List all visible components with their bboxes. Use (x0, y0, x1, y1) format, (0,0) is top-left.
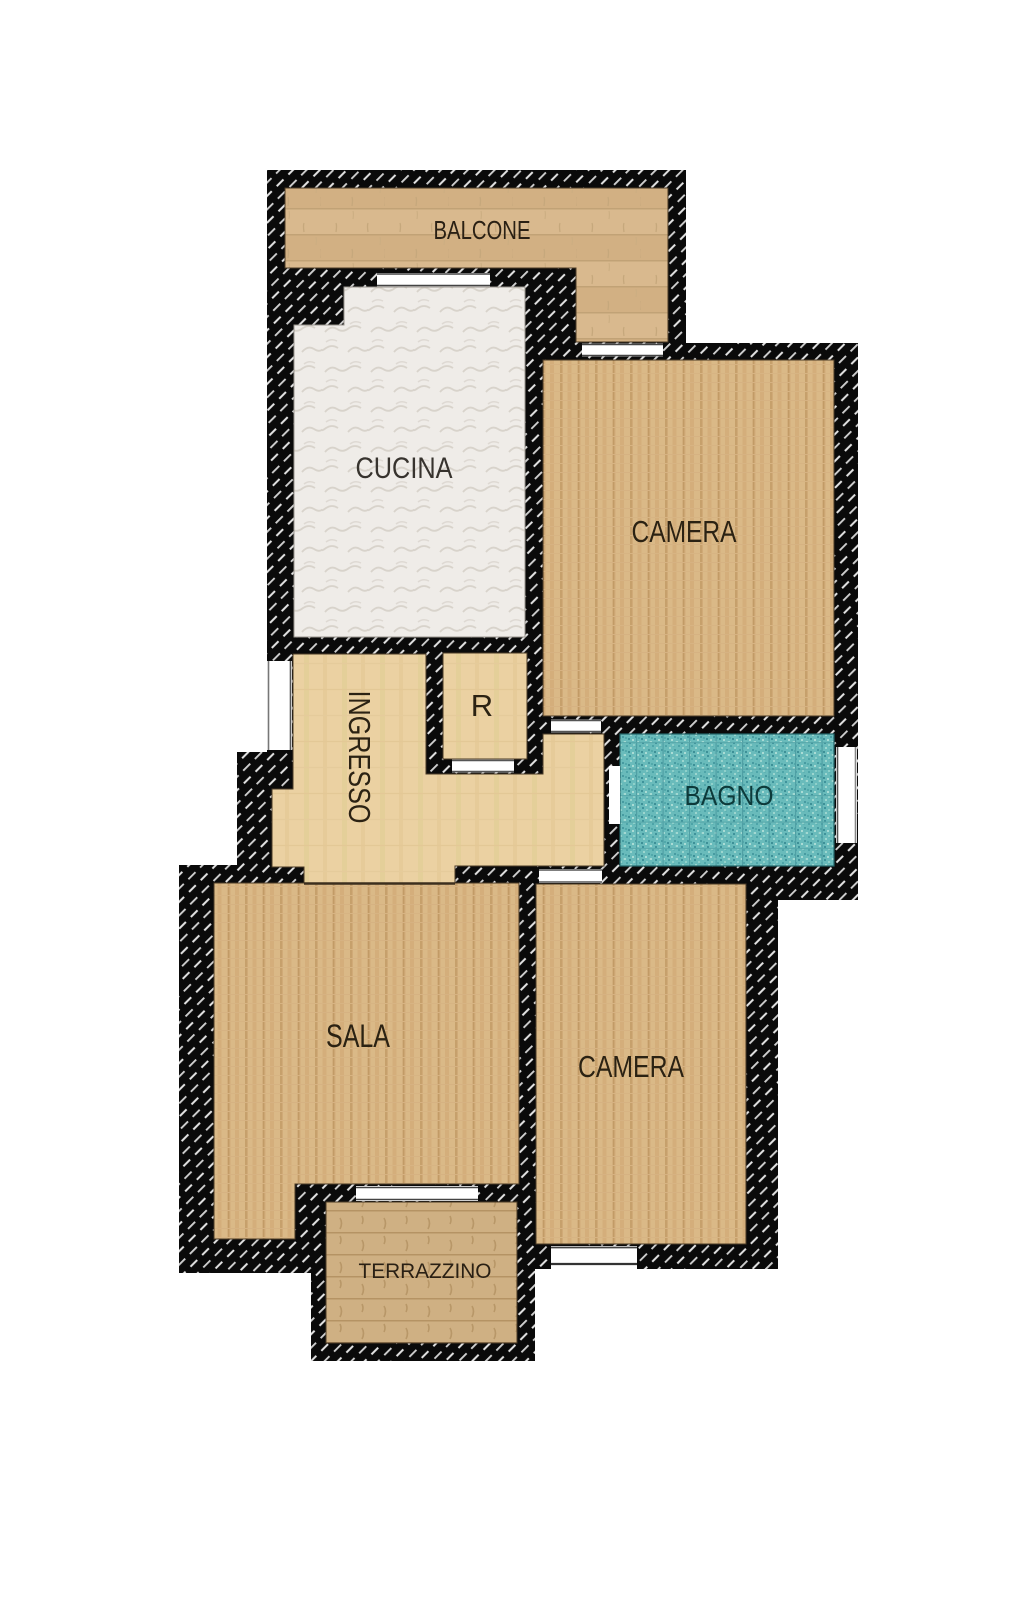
svg-text:BAGNO: BAGNO (685, 780, 774, 811)
svg-text:CAMERA: CAMERA (632, 514, 737, 549)
svg-text:BALCONE: BALCONE (434, 215, 531, 245)
svg-text:R: R (471, 688, 493, 723)
svg-text:TERRAZZINO: TERRAZZINO (359, 1260, 492, 1283)
svg-text:CUCINA: CUCINA (356, 452, 453, 485)
svg-text:INGRESSO: INGRESSO (342, 691, 377, 824)
svg-text:SALA: SALA (326, 1018, 391, 1054)
svg-text:CAMERA: CAMERA (578, 1049, 684, 1084)
